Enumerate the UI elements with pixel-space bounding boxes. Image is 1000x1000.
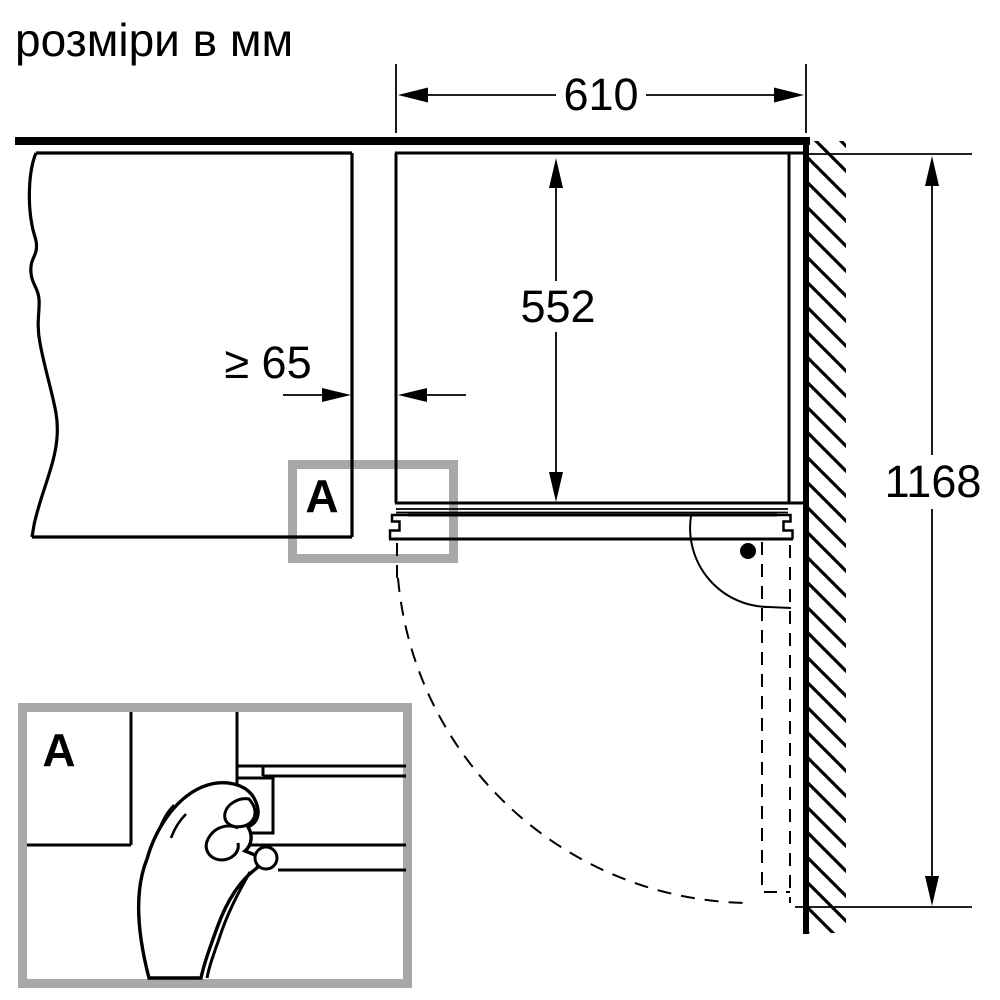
arrowhead-down [549,472,563,502]
dimension-552: 552 [520,158,595,502]
arrowhead-left [398,88,428,103]
detail-inset: A [23,708,408,984]
wall-section [803,140,846,934]
wall-hatching [809,141,846,933]
arrowhead-up [549,158,563,188]
hinge-swing-arc-solid [690,516,791,608]
arrowhead-left [398,388,427,402]
door-right-bracket [777,515,793,539]
arrowhead-right [322,388,351,402]
dimension-value-1168: 1168 [885,456,982,507]
wall-edge-line [803,140,809,934]
installation-dimensions-diagram: розміри в мм [0,0,1000,1000]
diagram-canvas: розміри в мм [0,0,1000,1000]
leveling-screw-knob [255,847,277,869]
dimension-value-min65: ≥ 65 [224,337,311,388]
dimension-value-610: 610 [563,69,638,120]
dimension-value-552: 552 [520,281,595,332]
door-swing [397,516,791,903]
appliance-niche [395,153,972,503]
dimension-min-65: ≥ 65 [224,337,466,402]
countertop-line [15,137,810,145]
cabinet-break-line [29,153,57,537]
inset-label-a: A [42,724,75,776]
swing-arc-dashed [398,578,750,903]
hinge-pivot-dot [740,543,756,559]
open-door-dashed-inner [762,542,790,892]
page-title: розміри в мм [15,14,293,66]
door-left-bracket [390,515,408,539]
dimension-610: 610 [396,64,806,133]
callout-label-a: A [305,470,338,522]
arrowhead-up [925,156,939,186]
arrowhead-down [925,876,939,906]
arrowhead-right [774,88,804,103]
